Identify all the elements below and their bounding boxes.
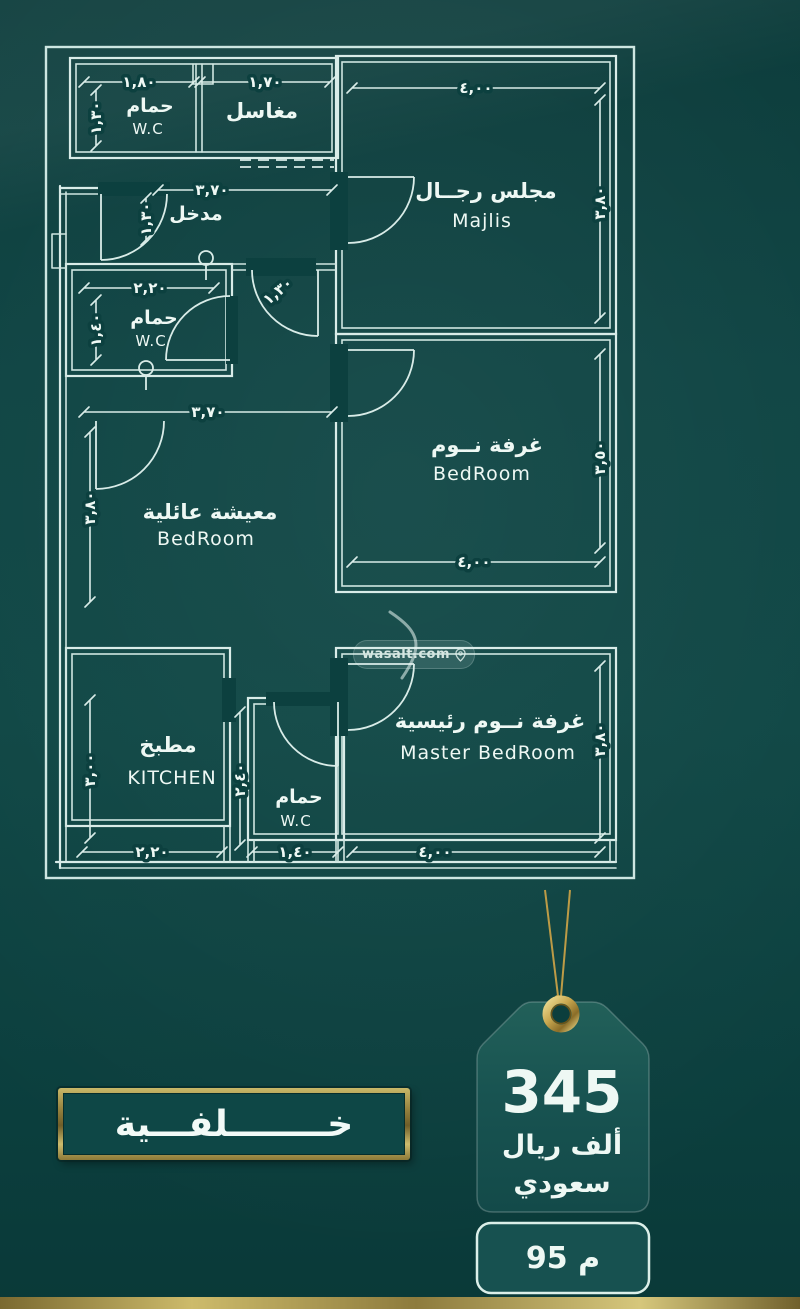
gold-bottom-bar (0, 1297, 800, 1309)
room-labels: حمام W.C مغاسل مدخل مجلس رجــال Majlis ح… (126, 95, 585, 830)
dim-hall-w: ٣,٧٠ (191, 403, 224, 421)
room-label-wc-mid-en: W.C (135, 332, 166, 350)
room-label-living-ar: معيشة عائلية (143, 500, 278, 524)
room-label-wc-top-en: W.C (132, 120, 163, 138)
entry-door-arc (101, 194, 167, 260)
dim-living-h: ٣,٨٠ (81, 491, 99, 524)
dim-entry-w: ٣,٧٠ (195, 181, 228, 199)
dim-hall-door-w: ١,٣٠ (259, 274, 296, 309)
room-label-bedroom-ar: غرفة نــوم (431, 433, 543, 457)
tag-currency-line1: ألف ريال (502, 1127, 622, 1161)
door-openings (98, 172, 348, 736)
tag-currency-line2: سعودي (513, 1168, 610, 1199)
room-label-kitchen-en: KITCHEN (127, 767, 216, 789)
dim-kitchen-h: ٣,٠٠ (81, 753, 99, 786)
dim-kitchen-w: ٢,٢٠ (135, 843, 168, 861)
dim-majlis-h: ٣,٨٠ (591, 186, 609, 219)
room-label-kitchen-ar: مطبخ (139, 733, 196, 757)
dim-wc-mid-h: ١,٤٠ (87, 313, 105, 346)
watermark-text: wasalt.com (362, 647, 450, 662)
majlis-door-arc (348, 177, 414, 243)
room-label-master-en: Master BedRoom (400, 742, 576, 764)
watermark: wasalt.com (353, 640, 475, 669)
wc-bottom-door-arc (274, 702, 338, 766)
living-door-arc (96, 421, 164, 489)
room-label-bedroom-en: BedRoom (433, 463, 531, 485)
room-label-wc-bottom-en: W.C (280, 812, 311, 830)
dim-majlis-w: ٤,٠٠ (459, 79, 492, 97)
room-label-wc-mid-ar: حمام (130, 307, 178, 329)
pin-icon (455, 648, 466, 662)
dim-bedroom-w: ٤,٠٠ (457, 553, 490, 571)
tag-string (545, 890, 570, 1003)
room-label-wc-bottom-ar: حمام (275, 786, 323, 808)
dim-master-h: ٣,٨٠ (591, 723, 609, 756)
price-tag: 345 ألف ريال سعودي (477, 1000, 649, 1213)
room-label-entry: مدخل (169, 203, 222, 225)
bedroom-door-arc (348, 350, 414, 416)
room-label-master-ar: غرفة نــوم رئيسية (395, 709, 586, 733)
dim-bedroom-h: ٣,٥٠ (591, 441, 609, 474)
room-label-basins: مغاسل (226, 99, 298, 123)
dim-wc-mid-w: ٢,٢٠ (133, 279, 166, 297)
area-box: 95 م (477, 1223, 649, 1293)
area-value: 95 م (526, 1241, 600, 1276)
rear-label-text: خــــــــلفـــية (115, 1104, 353, 1145)
room-label-living-en: BedRoom (157, 528, 255, 550)
room-label-majlis-ar: مجلس رجــال (415, 179, 556, 203)
floor-plan-poster: { "plan": { "rooms": { "wc_top": {"ar": … (0, 0, 800, 1309)
tag-amount: 345 (501, 1058, 622, 1126)
rear-label-box: خــــــــلفـــية (58, 1088, 410, 1160)
dim-wc-bottom-h: ٢,٤٠ (231, 763, 249, 796)
dim-wc-top-h: ١,٣٠ (87, 101, 105, 134)
dim-wc-top-w: ١,٨٠ (122, 73, 155, 91)
dim-master-w: ٤,٠٠ (418, 843, 451, 861)
dim-basins-w: ١,٧٠ (248, 73, 281, 91)
room-label-majlis-en: Majlis (452, 210, 512, 232)
dim-wc-bottom-w: ١,٤٠ (278, 843, 311, 861)
dim-entry-h: ١,٣٠ (137, 202, 155, 235)
room-label-wc-top-ar: حمام (126, 95, 174, 117)
